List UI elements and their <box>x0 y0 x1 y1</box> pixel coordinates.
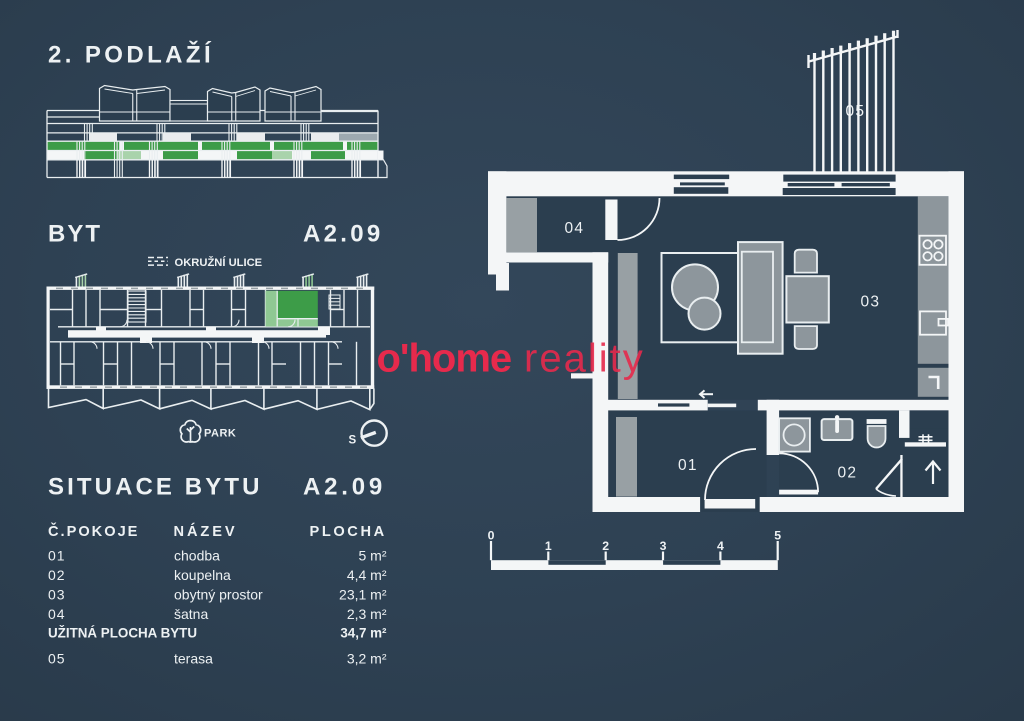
svg-text:3,2 m²: 3,2 m² <box>347 651 387 667</box>
svg-text:02: 02 <box>48 567 66 583</box>
svg-text:OKRUŽNÍ ULICE: OKRUŽNÍ ULICE <box>175 256 263 269</box>
svg-text:2,3 m²: 2,3 m² <box>347 606 387 622</box>
svg-text:04: 04 <box>565 220 585 237</box>
svg-text:03: 03 <box>861 294 881 311</box>
svg-text:4,4 m²: 4,4 m² <box>347 567 387 583</box>
svg-text:5 m²: 5 m² <box>359 548 387 564</box>
svg-text:A2.09: A2.09 <box>303 221 384 248</box>
svg-text:PLOCHA: PLOCHA <box>310 524 387 540</box>
svg-text:2: 2 <box>602 539 609 553</box>
svg-text:1: 1 <box>545 539 552 553</box>
svg-text:obytný prostor: obytný prostor <box>174 587 263 603</box>
svg-text:NÁZEV: NÁZEV <box>174 523 238 540</box>
svg-text:04: 04 <box>48 606 66 622</box>
svg-text:UŽITNÁ PLOCHA BYTU: UŽITNÁ PLOCHA BYTU <box>48 626 197 641</box>
svg-text:01: 01 <box>48 548 66 564</box>
svg-text:šatna: šatna <box>174 606 208 622</box>
svg-text:S: S <box>349 435 357 447</box>
svg-text:o'home: o'home <box>377 337 512 381</box>
svg-text:SITUACE BYTU: SITUACE BYTU <box>48 474 263 501</box>
svg-text:03: 03 <box>48 587 66 603</box>
svg-text:01: 01 <box>678 457 698 474</box>
svg-text:05: 05 <box>846 103 866 120</box>
svg-text:reality: reality <box>524 337 645 381</box>
svg-text:Č.POKOJE: Č.POKOJE <box>48 522 139 540</box>
svg-text:05: 05 <box>48 651 66 667</box>
svg-text:A2.09: A2.09 <box>303 474 386 501</box>
svg-text:PARK: PARK <box>204 428 236 440</box>
svg-text:3: 3 <box>660 539 667 553</box>
svg-text:02: 02 <box>838 465 858 482</box>
svg-text:2. PODLAŽÍ: 2. PODLAŽÍ <box>48 41 214 69</box>
svg-text:chodba: chodba <box>174 548 220 564</box>
svg-text:23,1 m²: 23,1 m² <box>339 587 387 603</box>
svg-text:0: 0 <box>488 529 495 543</box>
svg-text:5: 5 <box>774 529 781 543</box>
svg-text:4: 4 <box>717 539 724 553</box>
svg-text:BYT: BYT <box>48 221 102 248</box>
svg-text:34,7 m²: 34,7 m² <box>340 626 387 641</box>
svg-text:koupelna: koupelna <box>174 567 231 583</box>
svg-text:terasa: terasa <box>174 651 213 667</box>
